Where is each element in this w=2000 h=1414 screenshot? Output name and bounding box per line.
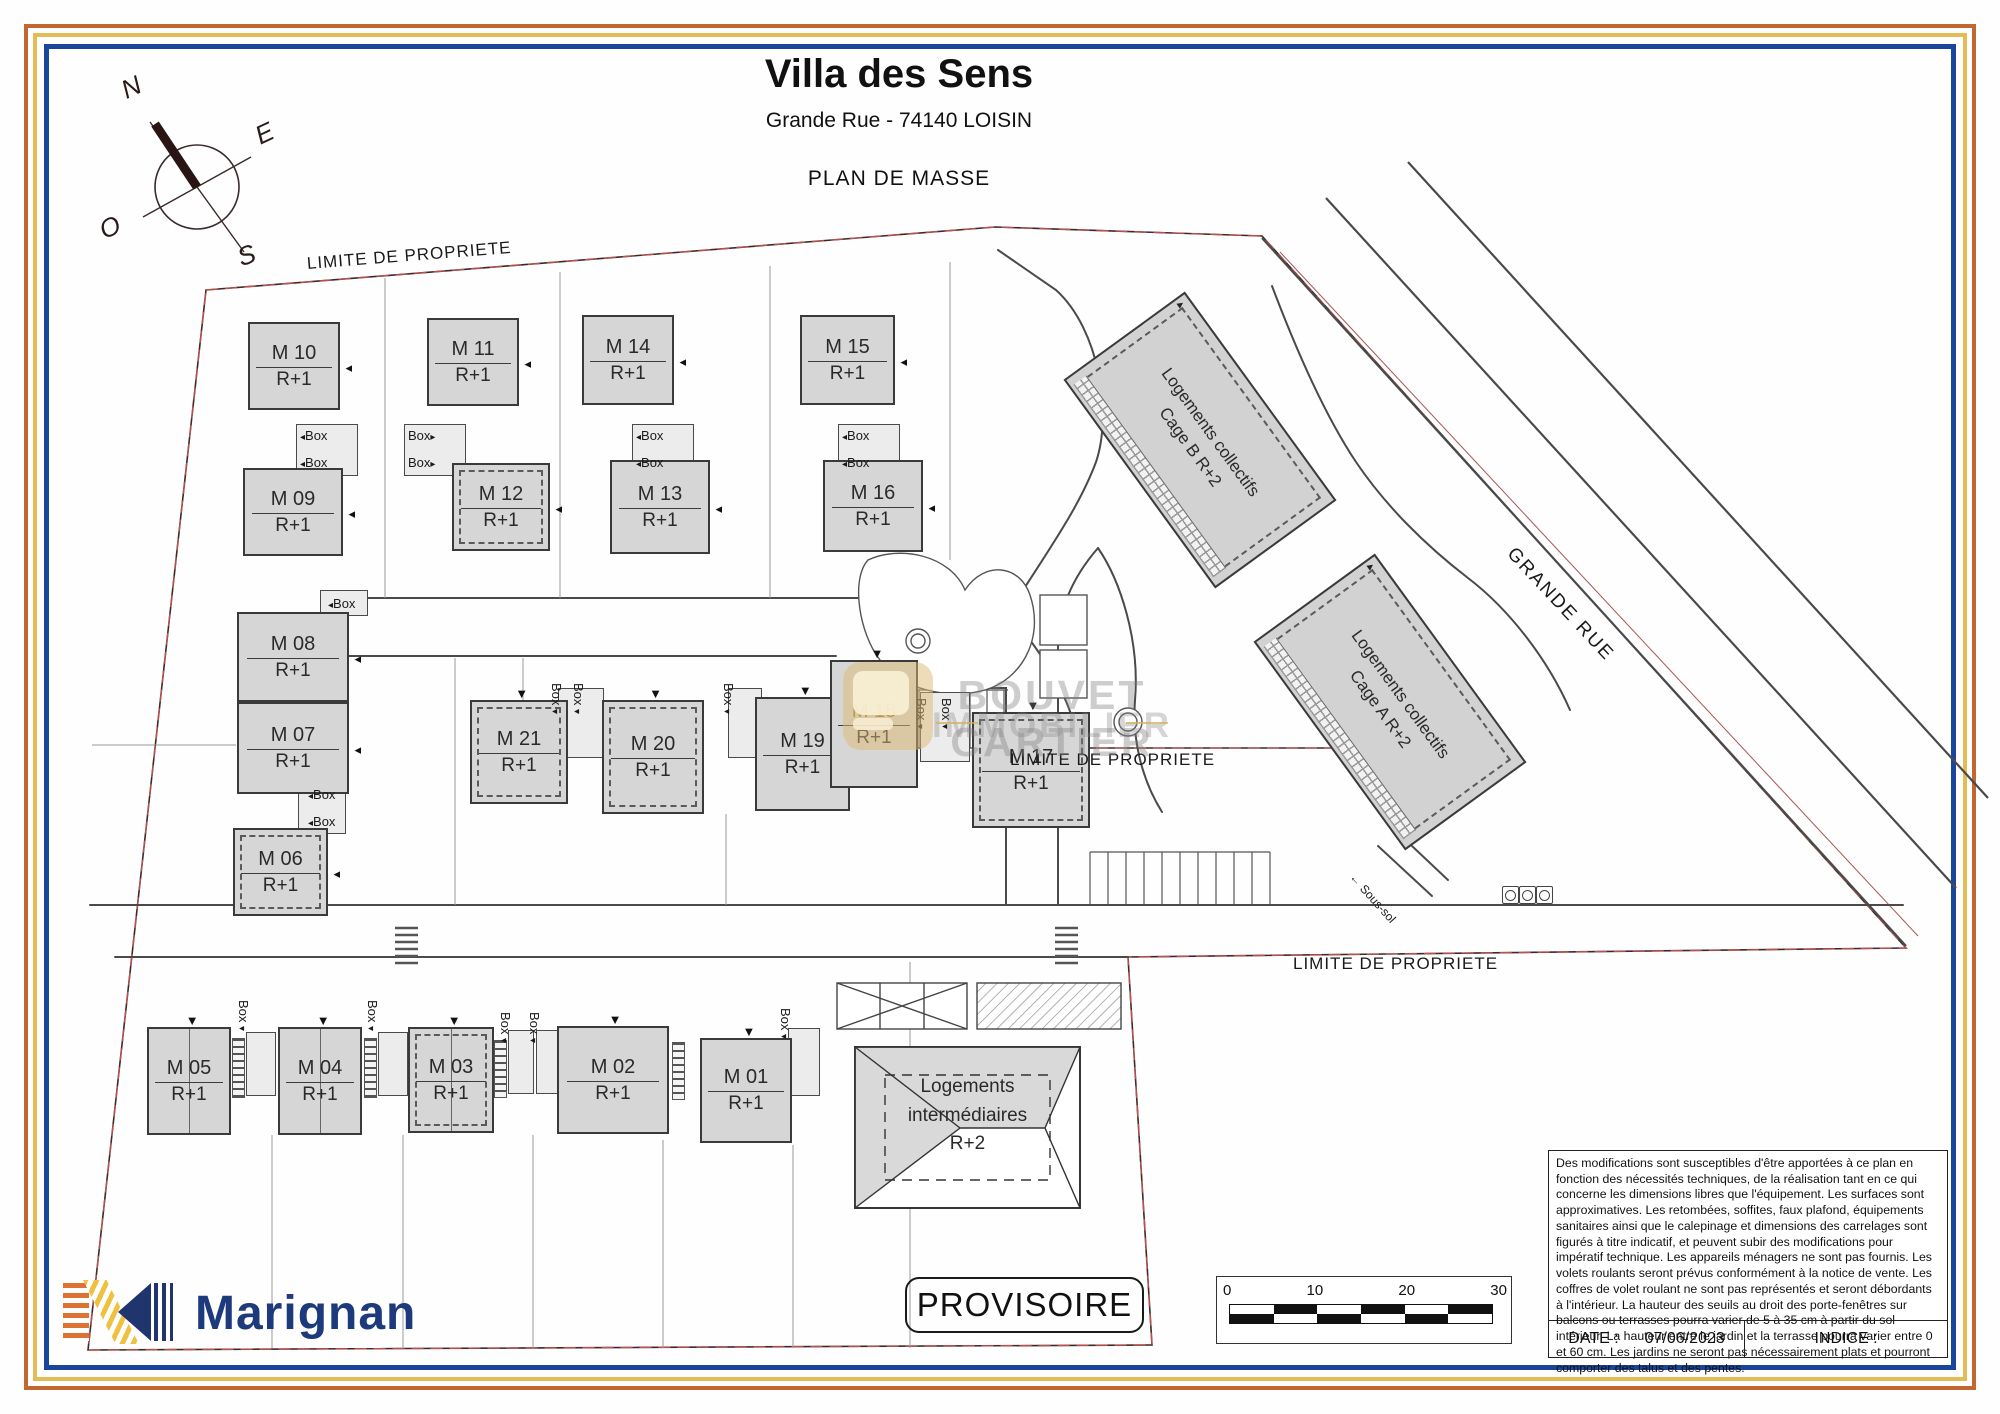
house-floors: R+1 — [610, 364, 645, 385]
house-number: M 04 — [298, 1057, 342, 1080]
intermediate-label: LogementsintermédiairesR+2 — [855, 1073, 1080, 1159]
house-floors: R+1 — [275, 661, 310, 682]
house-m04: M 04R+1▼ — [278, 1027, 362, 1135]
plan-type-label: PLAN DE MASSE — [599, 167, 1199, 191]
house-m05: M 05R+1▼ — [147, 1027, 231, 1135]
entrance-marker-icon: ◂ — [928, 501, 935, 514]
entrance-marker-icon: ▼ — [1026, 699, 1039, 712]
entrance-marker-icon: ◂ — [345, 361, 352, 374]
stair-strip — [232, 1038, 245, 1098]
house-m11: M 11R+1◂ — [427, 318, 519, 406]
house-floors: R+1 — [263, 876, 298, 897]
house-m10: M 10R+1◂ — [248, 322, 340, 410]
house-number: M 16 — [851, 482, 895, 505]
house-m20: M 20R+1▼ — [602, 700, 704, 814]
house-number: M 03 — [429, 1056, 473, 1079]
box-label: Box ▾ — [365, 1000, 380, 1031]
house-m21: M 21R+1▼ — [470, 700, 568, 804]
box-label: ◂Box — [308, 814, 335, 829]
house-number: M 12 — [479, 483, 523, 506]
box-label: Box ▾ — [939, 698, 954, 729]
box-label: Box ▾ — [914, 698, 929, 729]
disclaimer-box: Des modifications sont susceptibles d'êt… — [1548, 1150, 1948, 1358]
box-label: Box ▾ — [721, 683, 736, 714]
house-m14: M 14R+1◂ — [582, 315, 674, 405]
entrance-marker-icon: ◂ — [679, 355, 686, 368]
box-label: ◂Box — [842, 455, 869, 470]
entrance-marker-icon: ▼ — [649, 687, 662, 700]
page-address: Grande Rue - 74140 LOISIN — [599, 109, 1199, 133]
box-label: Box ▾ — [778, 1008, 793, 1039]
box-label: ◂Box — [300, 428, 327, 443]
utility-meter-icon — [1519, 886, 1536, 904]
grande-rue-road — [1262, 162, 1988, 946]
boundary-street-label: LIMITE DE PROPRIETE — [1010, 750, 1215, 770]
entrance-marker-icon: ◂ — [715, 502, 722, 515]
house-number: M 10 — [272, 342, 316, 365]
box-label: ◂Box — [842, 428, 869, 443]
house-floors: R+1 — [830, 364, 865, 385]
house-m02: M 02R+1▼ — [557, 1026, 669, 1134]
house-number: M 02 — [591, 1056, 635, 1079]
box-label: ◂Box — [636, 455, 663, 470]
scale-tick: 10 — [1307, 1282, 1324, 1299]
scale-ticks: 0102030 — [1223, 1282, 1507, 1299]
utility-meter-icon — [1536, 886, 1553, 904]
compass-rose — [143, 122, 251, 252]
house-number: M 13 — [638, 483, 682, 506]
marignan-wordmark: Marignan — [195, 1286, 416, 1341]
house-number: M 21 — [497, 728, 541, 751]
title-block: Villa des Sens Grande Rue - 74140 LOISIN… — [599, 52, 1199, 191]
house-m18: M 18R+1▼ — [830, 660, 918, 788]
house-floors: R+1 — [635, 761, 670, 782]
house-m13: M 13R+1◂ — [610, 460, 710, 554]
box-label: Box ▾ — [236, 1000, 251, 1031]
house-number: M 18 — [852, 700, 896, 723]
parking-stalls-east — [1090, 852, 1270, 905]
house-number: M 20 — [631, 733, 675, 756]
scale-checker — [1229, 1304, 1493, 1324]
house-m03: M 03R+1▼ — [408, 1027, 494, 1133]
entrance-marker-icon: ▼ — [799, 684, 812, 697]
box-label: Box ▾ — [549, 683, 564, 714]
entrance-marker-icon: ▼ — [186, 1014, 199, 1027]
house-m01: M 01R+1▼ — [700, 1038, 792, 1143]
house-m17: M 17R+1▼ — [972, 712, 1090, 828]
utility-meter-icon — [1502, 886, 1519, 904]
house-floors: R+1 — [276, 370, 311, 391]
house-number: M 08 — [271, 633, 315, 656]
box-label: Box ▾ — [498, 1012, 513, 1043]
date-label: DATE : — [1568, 1330, 1618, 1348]
stair-strip — [494, 1040, 507, 1098]
entrance-marker-icon: ▼ — [742, 1025, 755, 1038]
box-label: Box ▾ — [571, 683, 586, 714]
entrance-marker-icon: ▼ — [448, 1014, 461, 1027]
house-number: M 07 — [271, 724, 315, 747]
scale-tick: 30 — [1490, 1282, 1507, 1299]
entrance-marker-icon: ◂ — [348, 507, 355, 520]
box-label: ◂Box — [308, 787, 335, 802]
house-floors: R+1 — [302, 1085, 337, 1106]
scale-tick: 20 — [1398, 1282, 1415, 1299]
house-floors: R+1 — [455, 366, 490, 387]
entrance-marker-icon: ▼ — [515, 687, 528, 700]
house-floors: R+1 — [856, 728, 891, 749]
entrance-marker-icon: ◂ — [354, 743, 361, 756]
garage-box — [378, 1032, 408, 1096]
entrance-marker-icon: ◂ — [555, 502, 562, 515]
box-label: Box▸ — [408, 428, 435, 443]
stair-strip — [364, 1038, 377, 1098]
house-number: M 14 — [606, 336, 650, 359]
marignan-logo: Marignan — [63, 1278, 416, 1348]
indice-label: INDICE : — [1814, 1330, 1877, 1348]
house-floors: R+1 — [642, 511, 677, 532]
entrance-marker-icon: ▼ — [871, 647, 884, 660]
entrance-marker-icon: ◂ — [900, 355, 907, 368]
house-m07: M 07R+1◂ — [237, 702, 349, 794]
house-m08: M 08R+1◂ — [237, 612, 349, 702]
page-title: Villa des Sens — [599, 52, 1199, 97]
house-floors: R+1 — [483, 511, 518, 532]
house-number: M 09 — [271, 488, 315, 511]
entrance-marker-icon: ▼ — [609, 1013, 622, 1026]
site-plan-page: NEOS Villa des Sens Grande Rue - 74140 L… — [0, 0, 2000, 1414]
entrance-marker-icon: ◂ — [333, 867, 340, 880]
garage-box — [246, 1032, 276, 1096]
marignan-mark-icon — [63, 1280, 173, 1346]
house-floors: R+1 — [501, 756, 536, 777]
house-number: M 01 — [724, 1066, 768, 1089]
house-floors: R+1 — [275, 752, 310, 773]
title-block-row: DATE : 07/06/2023 INDICE : — [1549, 1320, 1947, 1357]
box-label: ◂Box — [328, 596, 355, 611]
entrance-marker-icon: ▼ — [317, 1014, 330, 1027]
house-floors: R+1 — [595, 1084, 630, 1105]
house-number: M 06 — [258, 848, 302, 871]
house-floors: R+1 — [1013, 774, 1048, 795]
house-m12: M 12R+1◂ — [452, 463, 550, 551]
house-m15: M 15R+1◂ — [800, 315, 895, 405]
entrance-marker-icon: ◂ — [354, 652, 361, 665]
house-floors: R+1 — [275, 516, 310, 537]
house-floors: R+1 — [855, 510, 890, 531]
scale-tick: 0 — [1223, 1282, 1231, 1299]
date-value: 07/06/2023 — [1645, 1330, 1725, 1348]
house-m16: M 16R+1◂ — [823, 460, 923, 552]
stair-strip — [672, 1042, 685, 1100]
house-number: M 15 — [825, 336, 869, 359]
boundary-street-label: LIMITE DE PROPRIETE — [1293, 954, 1498, 974]
house-number: M 11 — [452, 338, 495, 361]
house-number: M 19 — [780, 730, 824, 753]
entrance-marker-icon: ▸ — [1174, 296, 1187, 311]
scale-bar: 0102030 — [1216, 1276, 1512, 1344]
entrance-marker-icon: ▸ — [1364, 558, 1377, 573]
house-floors: R+1 — [171, 1085, 206, 1106]
house-floors: R+1 — [728, 1094, 763, 1115]
house-floors: R+1 — [433, 1084, 468, 1105]
house-floors: R+1 — [785, 758, 820, 779]
box-label: ◂Box — [636, 428, 663, 443]
entrance-marker-icon: ◂ — [524, 357, 531, 370]
house-m06: M 06R+1◂ — [233, 828, 328, 916]
box-label: Box▸ — [408, 455, 435, 470]
box-label: ◂Box — [300, 455, 327, 470]
parking-covered — [837, 983, 1121, 1029]
provisoire-stamp: PROVISOIRE — [905, 1277, 1144, 1333]
box-label: Box ▾ — [527, 1012, 542, 1043]
house-m09: M 09R+1◂ — [243, 468, 343, 556]
house-number: M 05 — [167, 1057, 211, 1080]
